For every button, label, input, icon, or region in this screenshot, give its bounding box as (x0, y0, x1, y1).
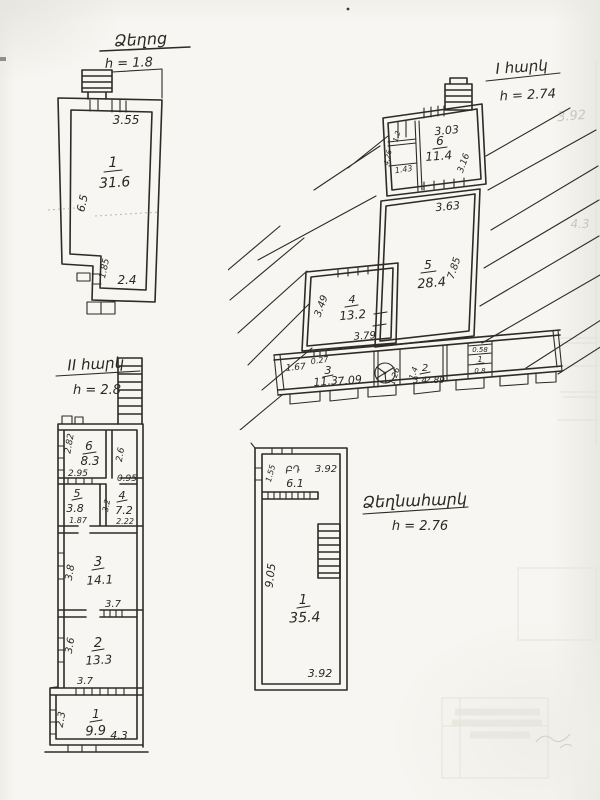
room-number: 1 (477, 355, 482, 364)
stair-icon (318, 524, 340, 578)
room-number: 5 (424, 258, 432, 272)
room-number: 6 (436, 134, 444, 148)
room-number: 4 (349, 293, 356, 306)
room-area: 9.9 (85, 723, 106, 739)
plan-floor1: I հարկ h = 2.74 3.03 6 (228, 38, 600, 430)
dim-left: 3.8 (64, 564, 78, 582)
room-number: 1 (299, 593, 307, 608)
dim-left: 1.55 (264, 464, 277, 484)
dim-right: 7.85 (446, 256, 463, 281)
room-label: ԲԴ (285, 464, 301, 476)
room-area: 8.3 (80, 454, 99, 468)
dim-bottom: 2.22 (116, 517, 134, 526)
window-marks (50, 446, 64, 734)
dim-bottom: 1.87 (69, 516, 88, 525)
dim-bottom: 2.89 (425, 376, 445, 386)
dim-left: 3.6 (64, 637, 78, 655)
room-area: 35.4 (289, 609, 321, 626)
room-number: 6 (85, 439, 93, 453)
room-area: 28.4 (417, 275, 447, 292)
dim-annex: 1.43 (394, 164, 413, 175)
dim-bottom: 0.8 (474, 367, 486, 375)
dim-right: 3.16 (456, 152, 472, 175)
dim-top: 0.58 (472, 346, 488, 354)
dim-bottom: 2.95 (68, 469, 88, 479)
room-area: 13.3 (85, 652, 112, 667)
window-marks (48, 100, 160, 314)
plan-title: II հարկ (67, 354, 125, 375)
room-area: 11.3 (313, 374, 339, 389)
walls (274, 104, 562, 395)
room-number: 3 (94, 555, 102, 570)
room-area: 31.6 (99, 174, 131, 192)
dim-bottom: 3.92 (308, 667, 333, 680)
dim-side: 2.6 (115, 446, 127, 462)
dim-side: 3.2 (101, 499, 112, 513)
dim-bottom: 3.7 (77, 676, 94, 687)
dim-bottom: 7.09 (337, 373, 363, 388)
dim-top: 3.55 (113, 113, 140, 127)
room-area: 6.1 (286, 477, 304, 490)
dim-bottom: 4.3 (110, 729, 128, 742)
dim-left: 2.3 (55, 711, 69, 729)
room-number: 1 (109, 155, 118, 171)
room-number: 2 (94, 636, 102, 651)
dim-left: 9.05 (263, 563, 279, 589)
scanned-floorplan-page: 3.92 4.3 Ձեղոց h = 1.8 3.55 1 31.6 6.5 1… (0, 0, 600, 800)
dim-top: 3.63 (435, 199, 461, 214)
room-area: 13.2 (339, 307, 367, 323)
dim-bottom: 0.95 (117, 474, 137, 484)
room-area: 11.4 (425, 148, 453, 164)
plan-floor2: II հարկ h = 2.8 6 8.3 2.82 2.95 2.6 0.95… (28, 338, 213, 783)
plan-title: Ձեղոց (114, 29, 168, 51)
room-area: 3.8 (66, 502, 84, 515)
dim-bottom: 2.4 (117, 273, 136, 287)
dim-bottom: 3.7 (105, 599, 122, 610)
dim-left: 6.5 (74, 193, 90, 213)
room-area: 7.2 (115, 504, 133, 517)
plan-height-note: h = 2.76 (392, 519, 448, 534)
plan-height-note: h = 2.8 (73, 383, 121, 398)
dim-top: 3.92 (315, 464, 337, 475)
plan-attic-large: Ձեղնահարկ h = 2.76 ԲԴ 6.1 3.92 1.55 1 35… (240, 428, 540, 718)
dim-left: 2.82 (63, 433, 76, 455)
plan-height-note: h = 2.74 (499, 87, 556, 105)
stair-icon (82, 70, 112, 99)
dim-left: 1.67 (285, 362, 306, 374)
dim-bottom: 3.79 (353, 330, 376, 343)
dim-left: 3.49 (313, 294, 331, 319)
room-number: 1 (92, 707, 100, 721)
room-area: 14.1 (86, 572, 113, 587)
